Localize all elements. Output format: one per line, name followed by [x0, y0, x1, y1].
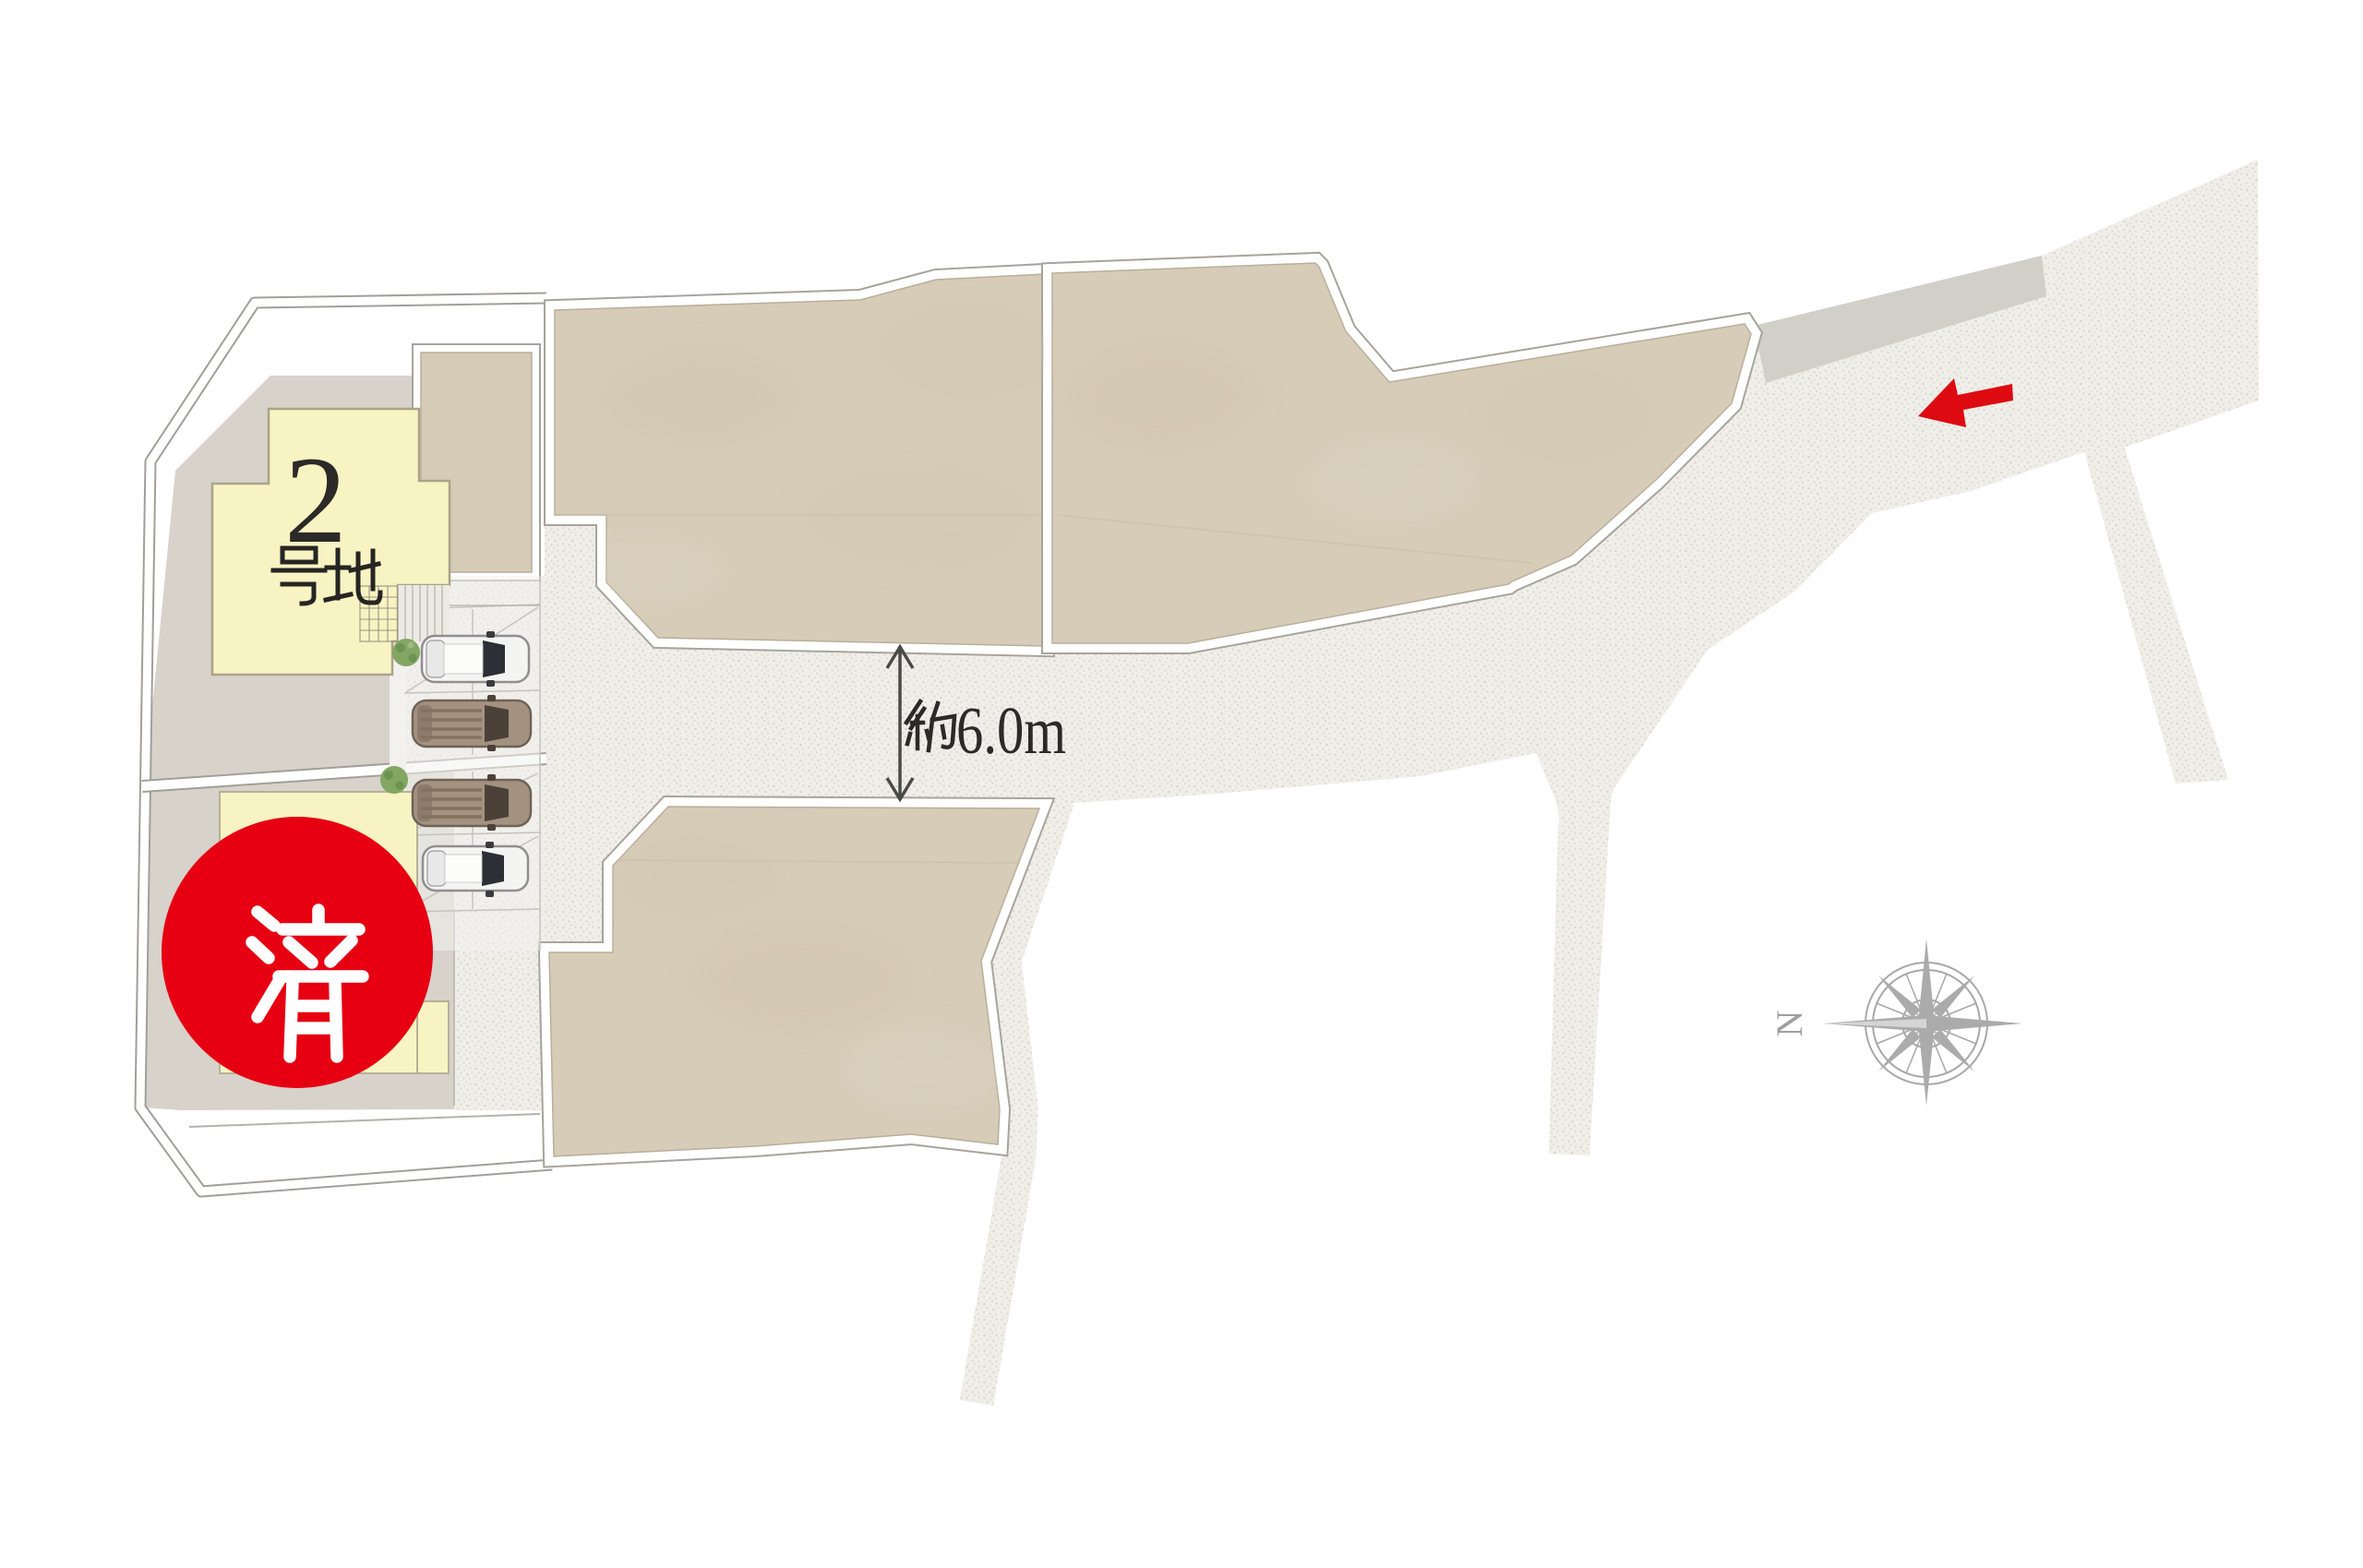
svg-text:N: N [1769, 1011, 1810, 1037]
svg-text:6.0m: 6.0m [956, 693, 1066, 768]
